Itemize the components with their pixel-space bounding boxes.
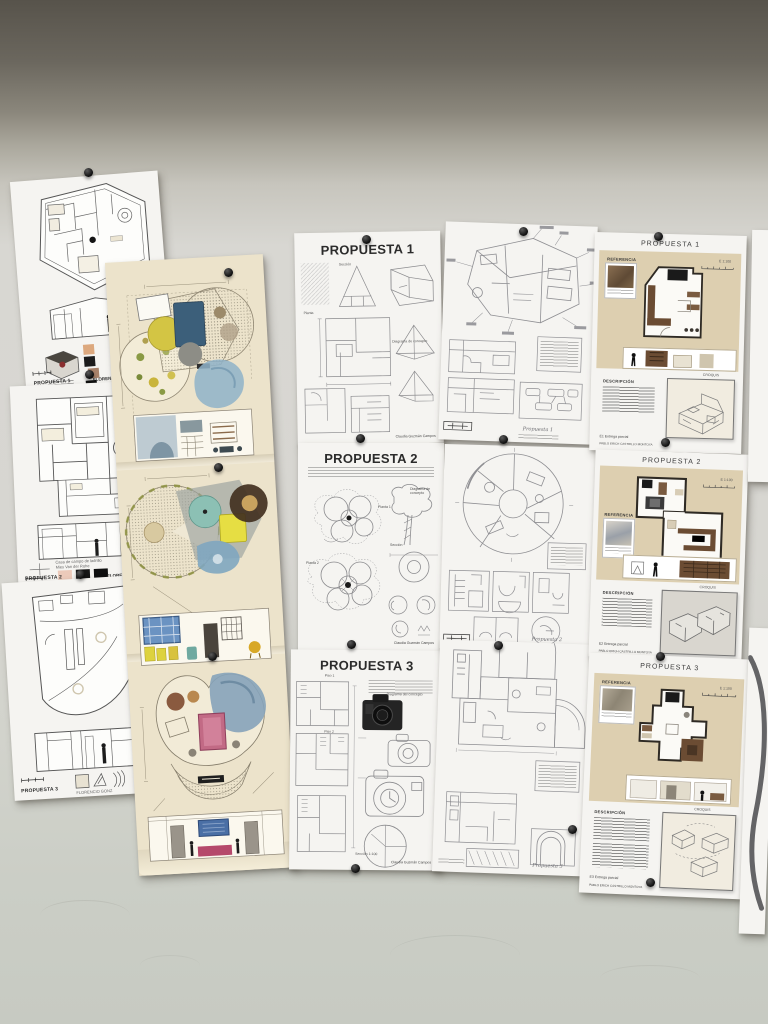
reference-photo bbox=[604, 262, 637, 299]
organic-plan-drawings bbox=[298, 483, 444, 653]
croquis-sketch bbox=[661, 591, 737, 656]
push-pin bbox=[656, 652, 665, 661]
sheet-poster-propuesta-2: PROPUESTA 2 REFERENCIA E 1:100 bbox=[588, 449, 748, 661]
author-signature: Claudia Guzmán Campos bbox=[394, 641, 434, 645]
digital-floor-plan bbox=[633, 261, 717, 345]
entrega-label: E3 Entrega parcial bbox=[589, 875, 618, 880]
author-label: PABLO ERICH CASTRILLO MONTOYA bbox=[599, 441, 652, 446]
scale-bar bbox=[444, 421, 472, 430]
croquis-box bbox=[666, 378, 736, 440]
push-pin bbox=[347, 640, 356, 649]
push-pin bbox=[494, 641, 503, 650]
entrega-label: E1 Entrega parcial bbox=[599, 434, 628, 439]
radiating-labels bbox=[444, 222, 597, 337]
descripcion-text-lines-2 bbox=[592, 843, 649, 869]
push-pin bbox=[76, 570, 85, 579]
author-signature: Claudia Guzmán Campos bbox=[396, 434, 436, 439]
scale-note bbox=[438, 858, 464, 864]
watercolor-elevation-a bbox=[134, 409, 254, 462]
push-pin bbox=[362, 235, 371, 244]
pinup-wall-photo: PROPUESTA 1 FLORENCIO GONZÁLEZ, ESTELA bbox=[0, 0, 768, 1024]
pyramid-drawings bbox=[295, 259, 444, 442]
descripcion-heading: DESCRIPCIÓN bbox=[603, 378, 634, 384]
label-seccion: Sección bbox=[339, 262, 352, 266]
color-swatch bbox=[84, 356, 96, 367]
wall-scuff bbox=[600, 965, 700, 992]
sheet-handdrawn-3: Propuesta 3 bbox=[432, 639, 598, 876]
sheet-sketch-propuesta-3: PROPUESTA 3 bbox=[289, 649, 443, 870]
label-piso2: Piso 2 bbox=[324, 730, 334, 734]
sheet-title: PROPUESTA 3 bbox=[589, 661, 751, 675]
reference-photo-caption bbox=[607, 289, 633, 295]
label-diagrama: Diagrama de concepto bbox=[392, 339, 427, 344]
push-pin bbox=[646, 878, 655, 887]
author-signature: Claudia Guzmán Campos bbox=[391, 860, 431, 864]
push-pin bbox=[351, 864, 360, 873]
elevation-drawings bbox=[447, 340, 515, 414]
push-pin bbox=[499, 435, 508, 444]
push-pin bbox=[214, 463, 223, 472]
label-seccion: Sección 1:100 bbox=[355, 852, 377, 856]
descripcion-heading: DESCRIPCIÓN bbox=[603, 590, 634, 596]
watercolor-plan-a bbox=[105, 258, 274, 467]
watercolor-elevation-c bbox=[148, 810, 284, 861]
wall-scuff bbox=[390, 935, 520, 976]
camera-plan-drawings bbox=[289, 677, 443, 868]
flow-diagram-box bbox=[519, 382, 582, 420]
label-seccion: Sección bbox=[390, 543, 402, 547]
layout-panel: REFERENCIA E 1:100 bbox=[596, 466, 743, 585]
layout-panel: REFERENCIA E 1:100 bbox=[596, 250, 741, 372]
elevation-strip bbox=[625, 774, 732, 805]
push-pin bbox=[85, 370, 94, 379]
label-planta2: Planta 2 bbox=[306, 561, 319, 565]
label-diagrama: Diagrama del concepto bbox=[387, 692, 423, 696]
plus-icon bbox=[29, 563, 50, 576]
entrega-label: E2 Entrega parcial bbox=[599, 642, 628, 647]
layout-panel: REFERENCIA E 1:100 bbox=[589, 673, 744, 807]
descripcion-text-lines bbox=[593, 817, 650, 841]
digital-floor-plan bbox=[624, 682, 720, 774]
scale-label: E 1:100 bbox=[719, 259, 731, 263]
push-pin bbox=[224, 268, 233, 277]
digital-floor-plan bbox=[627, 473, 730, 564]
push-pin bbox=[208, 652, 217, 661]
referencia-label: REFERENCIA bbox=[607, 256, 636, 262]
croquis-label: CROQUIS bbox=[694, 807, 711, 812]
sheet-poster-propuesta-3: PROPUESTA 3 REFERENCIA E 1:100 bbox=[579, 653, 751, 900]
croquis-label: CROQUIS bbox=[700, 585, 716, 590]
label-planta1: Planta 1 bbox=[378, 505, 391, 509]
elevation-strip bbox=[622, 347, 737, 372]
sheet-title: PROPUESTA 2 bbox=[298, 451, 444, 466]
push-pin bbox=[356, 434, 365, 443]
descripcion-heading: DESCRIPCIÓN bbox=[594, 809, 625, 815]
elevation-drawings bbox=[447, 570, 569, 647]
push-pin bbox=[519, 227, 528, 236]
wall-scuff bbox=[140, 955, 200, 976]
sheet-sketch-propuesta-1: PROPUESTA 1 bbox=[294, 231, 444, 446]
push-pin bbox=[568, 825, 577, 834]
handwritten-title: Propuesta 1 bbox=[523, 426, 554, 433]
intro-text-lines bbox=[308, 467, 434, 479]
watercolor-strip bbox=[105, 254, 297, 876]
handwritten-title: Propuesta 3 bbox=[532, 863, 563, 870]
wall-scuff bbox=[40, 900, 130, 931]
blue-wash bbox=[193, 358, 245, 409]
label-planta: Planta bbox=[304, 311, 314, 315]
notes-text-lines bbox=[540, 341, 579, 368]
watercolor-plan-c bbox=[127, 651, 296, 867]
axon-icon bbox=[45, 350, 79, 379]
concept-sketches bbox=[75, 770, 125, 789]
author-label: PABLO ERICH CASTRILLO MONTOYA bbox=[589, 883, 642, 889]
sheet-handdrawn-1: Propuesta 1 bbox=[438, 221, 598, 444]
sheet-title: PROPUESTA 3 bbox=[291, 657, 443, 673]
sheet-title: PROPUESTA 1 bbox=[595, 239, 747, 250]
label-diagrama: Diagrama de concepto bbox=[410, 487, 438, 495]
croquis-sketch bbox=[667, 379, 734, 439]
croquis-box bbox=[660, 590, 738, 657]
descripcion-text-lines bbox=[602, 598, 653, 628]
descripcion-text-lines bbox=[602, 386, 655, 413]
croquis-box bbox=[659, 812, 736, 891]
color-swatch bbox=[83, 344, 95, 355]
push-pin bbox=[84, 168, 93, 177]
partial-sheet-right-top bbox=[748, 230, 768, 482]
sheet-handdrawn-2: Propuesta 2 bbox=[439, 444, 596, 652]
camera-photo bbox=[362, 694, 402, 730]
label-piso1: Piso 1 bbox=[325, 674, 335, 678]
push-pin bbox=[661, 438, 670, 447]
elevation-strip bbox=[622, 554, 737, 582]
scale-label: E 1:100 bbox=[720, 686, 732, 691]
sheet-poster-propuesta-1: PROPUESTA 1 REFERENCIA E 1:100 bbox=[589, 232, 747, 454]
reference-photo-image bbox=[607, 265, 634, 288]
croquis-label: CROQUIS bbox=[703, 373, 719, 377]
push-pin bbox=[654, 232, 663, 241]
angular-plan-drawing bbox=[438, 221, 598, 444]
sheet-sketch-propuesta-2: PROPUESTA 2 bbox=[298, 443, 444, 651]
notes-text-lines bbox=[551, 547, 583, 566]
scale-bar bbox=[21, 777, 43, 782]
arched-plan-drawing bbox=[432, 639, 598, 876]
notes-text-lines bbox=[538, 765, 577, 788]
croquis-sketch bbox=[660, 813, 735, 890]
watercolor-plan-b bbox=[116, 460, 285, 669]
